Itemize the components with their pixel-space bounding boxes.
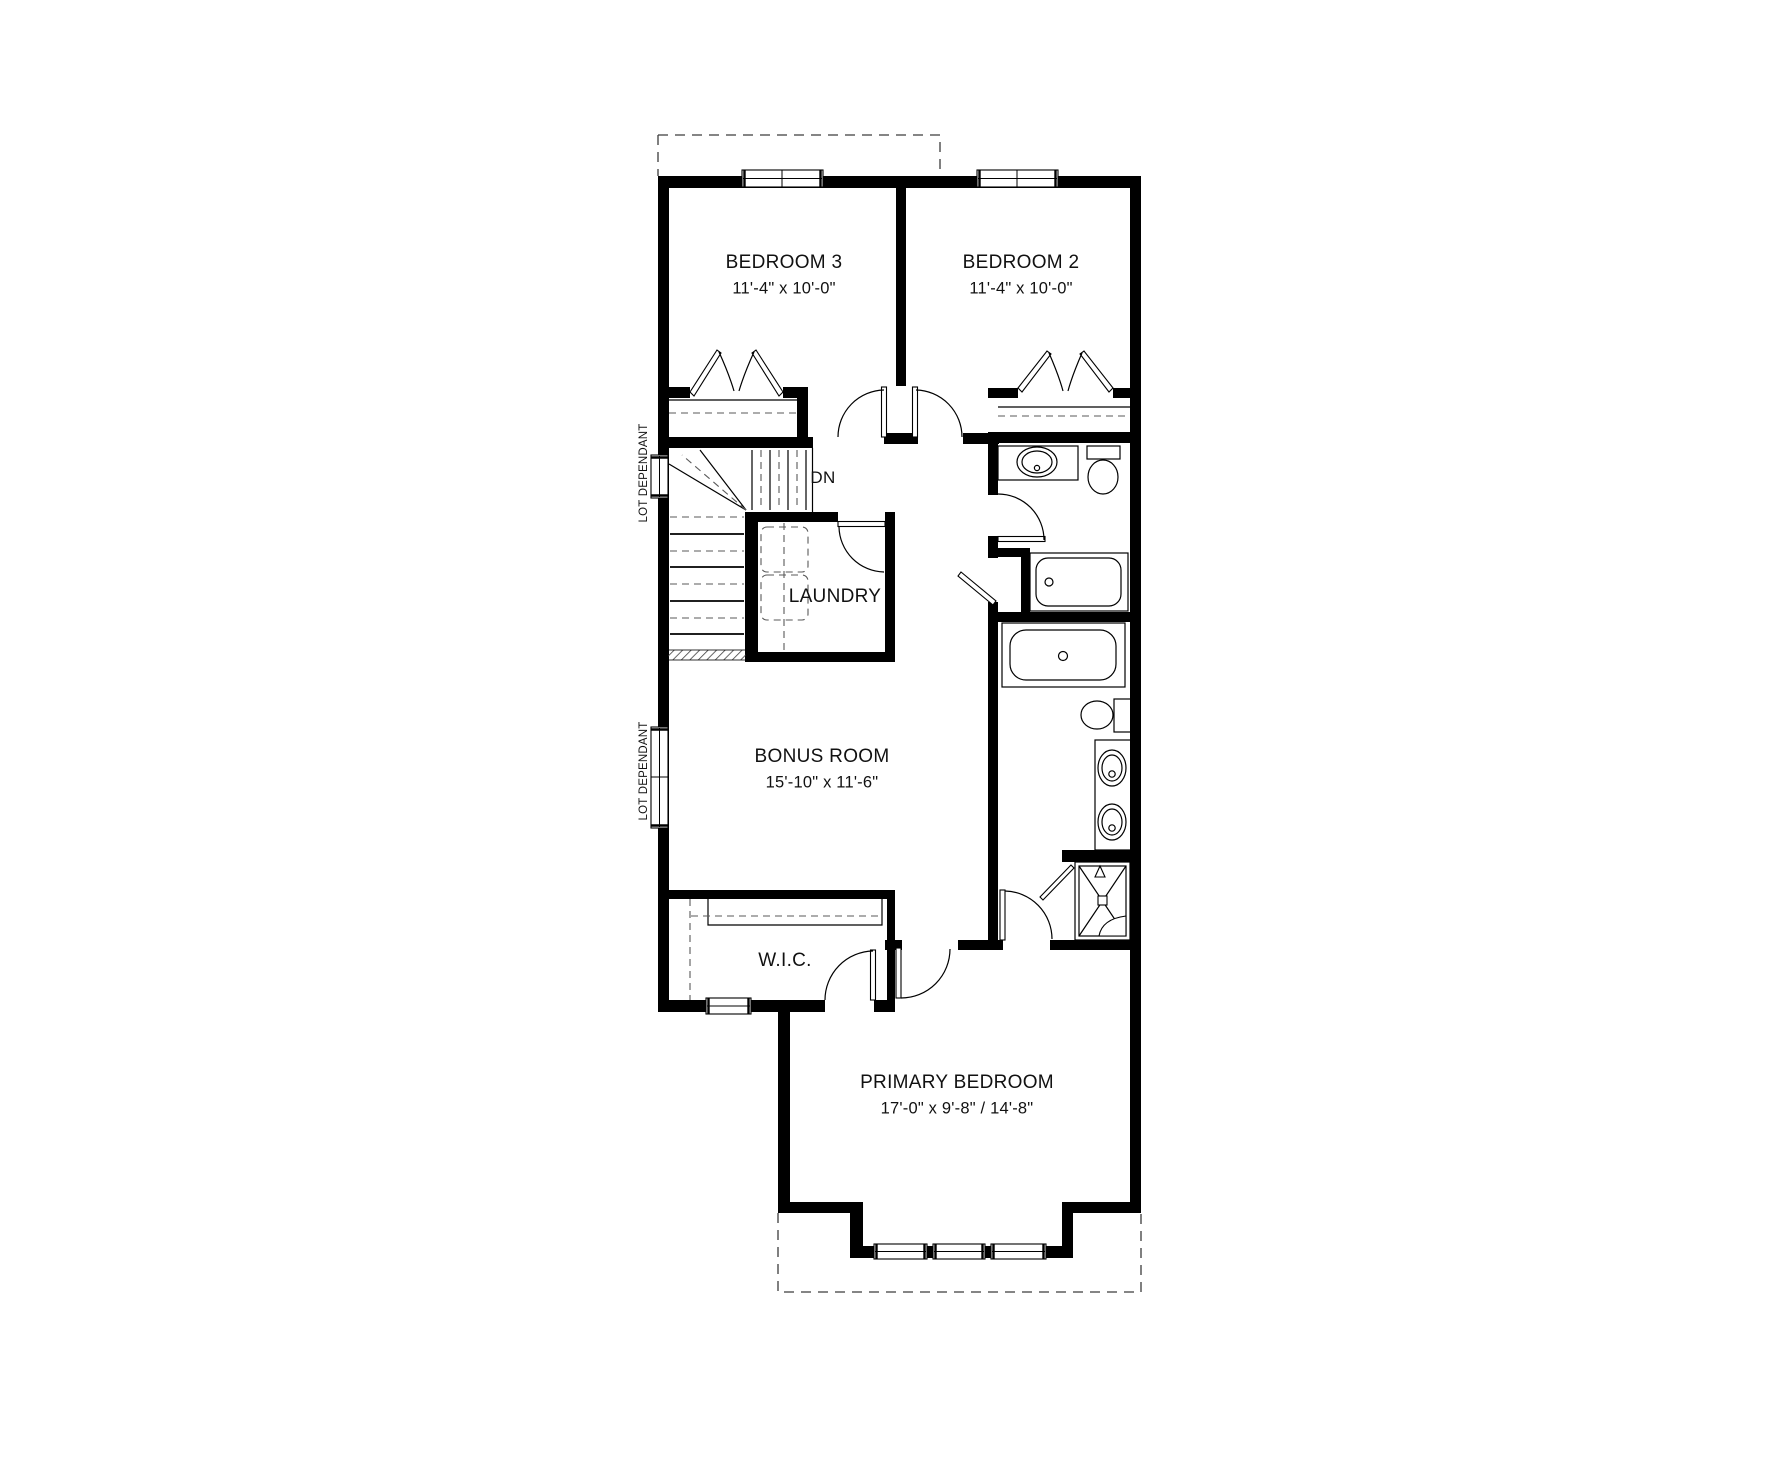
drain-icon: [1045, 578, 1053, 586]
bonus-room-label: BONUS ROOM: [755, 746, 890, 768]
lot-dependant-label-lower: LOT DEPENDANT: [638, 722, 650, 821]
wic-window: [706, 998, 751, 1014]
main-bath-tub: [1030, 553, 1128, 611]
faucet-icon: [1109, 771, 1115, 777]
bedroom3-closet-shelf: [669, 400, 797, 413]
wic-door[interactable]: [825, 950, 876, 1000]
bedroom2-door[interactable]: [913, 387, 963, 437]
staircase: [668, 448, 813, 660]
bay-window-right: [991, 1244, 1046, 1259]
bedroom2-dimensions: 11'-4" x 10'-0": [969, 280, 1072, 299]
bonus-room-dimensions: 15'-10" x 11'-6": [766, 774, 879, 793]
ensuite-soaker-tub: [1002, 623, 1125, 687]
ensuite-toilet: [1081, 699, 1131, 732]
bedroom2-closet-bifold-doors[interactable]: [1018, 351, 1113, 392]
wic-label: W.I.C.: [758, 950, 812, 972]
floor-plan-drawing: [0, 0, 1780, 1480]
bedroom3-dimensions: 11'-4" x 10'-0": [732, 280, 835, 299]
laundry-door[interactable]: [838, 522, 885, 573]
shower-seat: [1099, 916, 1126, 936]
interior-walls: [658, 176, 1131, 1012]
bedroom3-door[interactable]: [838, 387, 887, 437]
bedroom3-label: BEDROOM 3: [726, 252, 843, 274]
ensuite-shower: [1075, 862, 1130, 940]
main-bath-door[interactable]: [998, 494, 1045, 542]
primary-bedroom-door[interactable]: [896, 948, 950, 998]
shower-head-icon: [1095, 866, 1105, 877]
stair-down-label: DN: [810, 468, 835, 488]
stair-open-to-below-hatch: [668, 650, 746, 660]
drain-icon: [1059, 652, 1068, 661]
drain-icon: [1098, 896, 1107, 905]
main-bath-toilet: [1087, 446, 1120, 494]
bedroom2-window: [977, 170, 1058, 187]
floor-plan: BEDROOM 3 11'-4" x 10'-0" BEDROOM 2 11'-…: [0, 0, 1780, 1480]
lot-dependant-label-upper: LOT DEPENDANT: [638, 424, 650, 523]
bay-window-left: [874, 1244, 927, 1259]
faucet-icon: [1109, 825, 1115, 831]
laundry-label: LAUNDRY: [789, 586, 882, 608]
faucet-icon: [1034, 465, 1039, 470]
main-bath-vanity: [998, 446, 1078, 480]
bay-window-center: [933, 1244, 985, 1259]
bedroom2-label: BEDROOM 2: [963, 252, 1080, 274]
linen-closet-door[interactable]: [958, 572, 996, 605]
bedroom3-closet-bifold-doors[interactable]: [690, 350, 783, 396]
bedroom2-closet-shelf: [998, 407, 1130, 416]
bedroom3-window: [742, 170, 823, 187]
primary-bedroom-label: PRIMARY BEDROOM: [860, 1072, 1054, 1094]
primary-bedroom-dimensions: 17'-0" x 9'-8" / 14'-8": [881, 1100, 1034, 1119]
ensuite-double-vanity: [1095, 740, 1131, 850]
lot-dependant-window-lower: [651, 727, 668, 828]
lot-dependant-window-upper: [651, 455, 668, 498]
shower-door[interactable]: [1040, 865, 1074, 900]
